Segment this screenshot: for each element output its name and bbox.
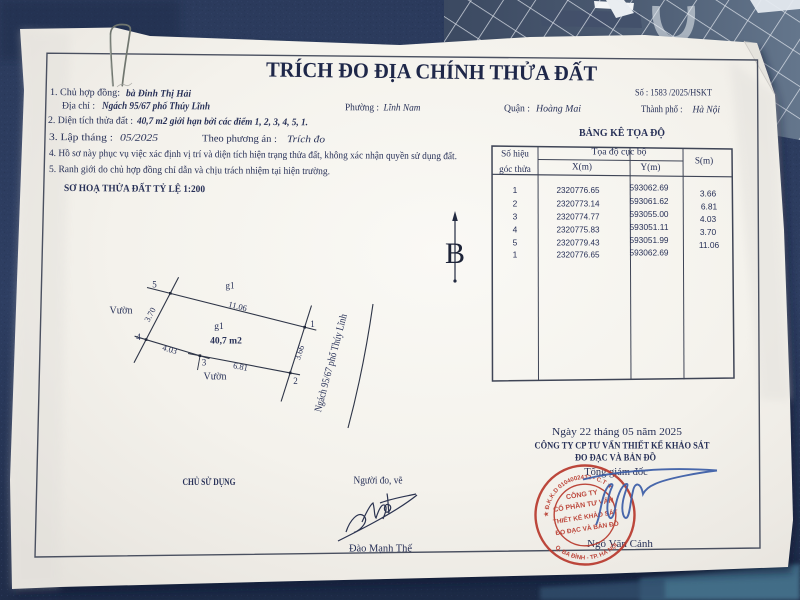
svg-text:góc thửa: góc thửa (499, 164, 531, 174)
svg-text:TRÍCH ĐO ĐỊA CHÍNH THỬA ĐẤT: TRÍCH ĐO ĐỊA CHÍNH THỬA ĐẤT (266, 58, 598, 86)
svg-text:4.03: 4.03 (700, 214, 717, 224)
svg-text:1: 1 (310, 319, 315, 329)
svg-text:Hà Nội: Hà Nội (692, 104, 721, 115)
svg-text:593051.99: 593051.99 (630, 235, 669, 245)
svg-text:593061.62: 593061.62 (630, 196, 669, 206)
svg-text:4: 4 (136, 332, 141, 342)
svg-text:Tọa độ cục bộ: Tọa độ cục bộ (592, 147, 647, 157)
svg-text:Vườn: Vườn (110, 306, 133, 317)
svg-text:2320773.14: 2320773.14 (557, 198, 600, 208)
svg-text:3: 3 (513, 211, 518, 221)
svg-text:3.70: 3.70 (700, 227, 717, 237)
svg-text:5. Ranh giới do chủ hợp đồng c: 5. Ranh giới do chủ hợp đồng chỉ dẫn và … (49, 164, 330, 177)
svg-text:Lĩnh Nam: Lĩnh Nam (383, 102, 421, 113)
svg-text:S(m): S(m) (695, 156, 713, 166)
svg-text:05/2025: 05/2025 (120, 133, 158, 144)
svg-text:Hoàng Mai: Hoàng Mai (535, 103, 581, 114)
svg-text:5: 5 (513, 238, 518, 248)
svg-text:593055.00: 593055.00 (630, 209, 669, 219)
svg-text:2: 2 (513, 198, 518, 208)
svg-text:3.66: 3.66 (700, 189, 717, 199)
svg-text:2. Diện tích thửa đất :: 2. Diện tích thửa đất : (48, 115, 133, 127)
svg-text:X(m): X(m) (572, 162, 592, 172)
svg-text:593062.69: 593062.69 (630, 247, 669, 257)
svg-text:2320775.83: 2320775.83 (557, 224, 600, 234)
svg-text:2: 2 (293, 376, 298, 386)
svg-text:593051.11: 593051.11 (630, 222, 669, 232)
svg-text:ĐO ĐẠC VÀ BẢN ĐỒ: ĐO ĐẠC VÀ BẢN ĐỒ (575, 451, 656, 464)
svg-text:593062.69: 593062.69 (630, 183, 669, 193)
svg-text:4: 4 (513, 224, 518, 234)
svg-text:Theo phương án :: Theo phương án : (202, 133, 277, 145)
svg-text:SƠ HOẠ THỬA ĐẤT TỶ LỆ 1:200: SƠ HOẠ THỬA ĐẤT TỶ LỆ 1:200 (64, 181, 205, 195)
svg-text:Địa chỉ :: Địa chỉ : (62, 101, 95, 112)
svg-text:3. Lập tháng :: 3. Lập tháng : (49, 132, 113, 144)
svg-text:1. Chủ hợp đồng:: 1. Chủ hợp đồng: (50, 87, 120, 99)
svg-text:40,7 m2: 40,7 m2 (210, 337, 242, 347)
svg-text:CHỦ SỬ DỤNG: CHỦ SỬ DỤNG (183, 477, 236, 487)
svg-text:6.81: 6.81 (701, 201, 718, 211)
svg-text:Thành phố :: Thành phố : (641, 104, 683, 115)
svg-text:BẢNG KÊ TỌA ĐỘ: BẢNG KÊ TỌA ĐỘ (579, 126, 665, 139)
svg-text:Ngách 95/67 phố Thúy Lĩnh: Ngách 95/67 phố Thúy Lĩnh (101, 101, 210, 113)
svg-text:Đào Mạnh Thế: Đào Mạnh Thế (349, 544, 413, 555)
svg-text:Quận :: Quận : (504, 103, 530, 114)
svg-text:40,7 m2 giới hạn bởi các điểm: 40,7 m2 giới hạn bởi các điểm 1, 2, 3, 4… (136, 116, 308, 128)
svg-text:B: B (445, 237, 465, 270)
svg-text:1: 1 (513, 250, 518, 260)
svg-text:3: 3 (202, 358, 207, 368)
svg-text:Số : 1583 /2025/HSKT: Số : 1583 /2025/HSKT (635, 88, 712, 99)
svg-text:2320774.77: 2320774.77 (557, 211, 600, 221)
svg-text:Ngày 22 tháng 05 năm 202: Ngày 22 tháng 05 năm 2025 (552, 427, 682, 438)
svg-text:2320776.65: 2320776.65 (557, 250, 600, 260)
svg-text:Số hiệu: Số hiệu (501, 149, 529, 159)
svg-text:2320779.43: 2320779.43 (557, 238, 600, 248)
svg-text:Người đo, vẽ: Người đo, vẽ (354, 476, 404, 487)
svg-text:bà Đinh Thị Hải: bà Đinh Thị Hải (126, 88, 191, 100)
svg-text:11.06: 11.06 (699, 240, 720, 250)
svg-text:Vườn: Vườn (204, 372, 227, 383)
svg-text:Phường :: Phường : (345, 102, 379, 113)
svg-text:Y(m): Y(m) (641, 162, 661, 172)
svg-text:2320776.65: 2320776.65 (557, 185, 600, 195)
svg-text:Trích đo: Trích đo (287, 134, 325, 145)
svg-text:CÔNG TY CP TƯ VẤN THIẾT KẾ KHẢ: CÔNG TY CP TƯ VẤN THIẾT KẾ KHẢO SÁT (535, 439, 710, 452)
svg-text:g1: g1 (226, 281, 235, 291)
svg-text:5: 5 (152, 280, 157, 290)
svg-text:1: 1 (513, 185, 518, 195)
svg-text:g1: g1 (214, 322, 224, 332)
